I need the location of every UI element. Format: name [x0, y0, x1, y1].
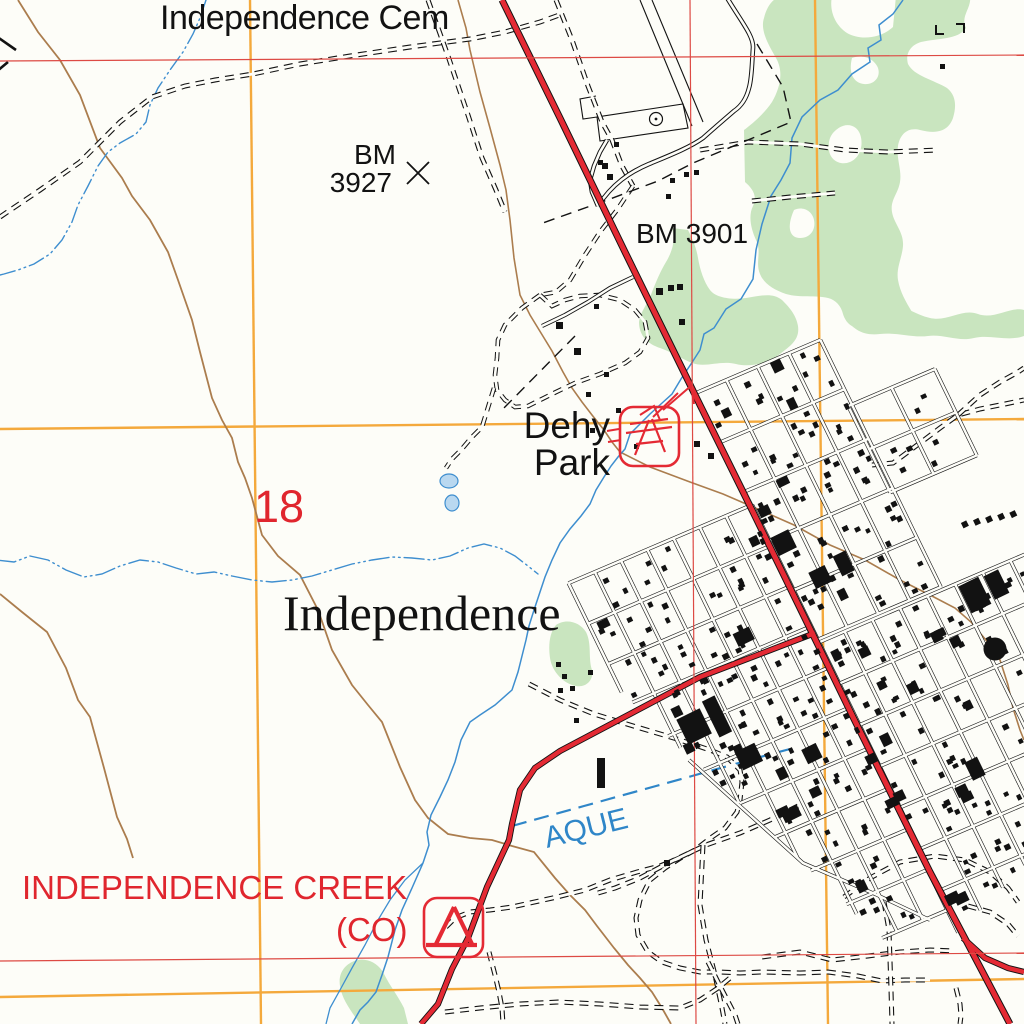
- svg-text:Independence Cem: Independence Cem: [160, 0, 449, 37]
- svg-text:Dehy: Dehy: [524, 405, 611, 446]
- svg-text:BM: BM: [354, 139, 396, 170]
- svg-text:Independence: Independence: [283, 585, 561, 641]
- svg-text:BM 3901: BM 3901: [636, 218, 748, 249]
- svg-text:18: 18: [254, 481, 304, 532]
- svg-text:INDEPENDENCE CREEK: INDEPENDENCE CREEK: [22, 869, 407, 906]
- svg-text:Park: Park: [534, 442, 611, 483]
- svg-text:3927: 3927: [330, 167, 392, 198]
- svg-text:(CO): (CO): [336, 911, 407, 948]
